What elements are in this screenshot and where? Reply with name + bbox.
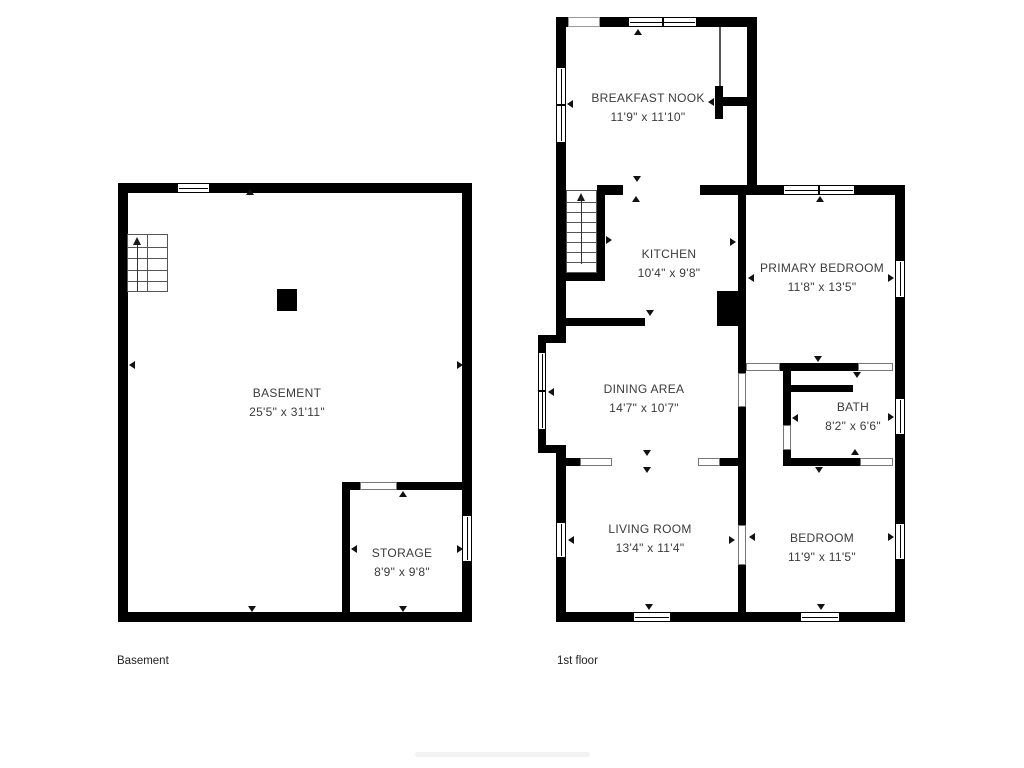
room-label-living-room: LIVING ROOM 13'4" x 11'4" xyxy=(550,520,750,558)
triangle-marker-icon xyxy=(645,604,653,610)
room-label-dining-area: DINING AREA 14'7" x 10'7" xyxy=(544,380,744,418)
wall-segment xyxy=(342,482,360,490)
room-dims: 11'8" x 13'5" xyxy=(722,278,922,297)
room-name: PRIMARY BEDROOM xyxy=(722,259,922,278)
floorplan-canvas: BASEMENT 25'5" x 31'11" STORAGE 8'9" x 9… xyxy=(0,0,1024,768)
triangle-marker-icon xyxy=(399,491,407,497)
wall-segment xyxy=(556,318,645,326)
arrow-up-icon xyxy=(577,193,585,201)
door-symbol xyxy=(860,458,893,466)
room-dims: 11'9" x 11'5" xyxy=(722,548,922,567)
door-symbol xyxy=(580,458,612,466)
wall-segment xyxy=(895,185,905,260)
staircase xyxy=(127,234,168,292)
stair-direction-line xyxy=(137,245,138,291)
triangle-marker-icon xyxy=(814,356,822,362)
triangle-marker-icon xyxy=(129,361,135,369)
room-dims: 11'9" x 11'10" xyxy=(548,108,748,127)
wall-segment xyxy=(556,445,566,522)
door-symbol xyxy=(360,482,397,490)
wall-segment xyxy=(780,363,858,371)
room-name: BATH xyxy=(753,398,953,417)
room-name: LIVING ROOM xyxy=(550,520,750,539)
plan-caption-first-floor: 1st floor xyxy=(557,655,598,667)
door-symbol xyxy=(858,363,893,371)
wall-segment xyxy=(671,612,800,622)
room-label-breakfast-nook: BREAKFAST NOOK 11'9" x 11'10" xyxy=(548,89,748,127)
room-label-storage: STORAGE 8'9" x 9'8" xyxy=(332,544,472,582)
room-dims: 13'4" x 11'4" xyxy=(550,539,750,558)
wall-segment xyxy=(538,335,546,352)
triangle-marker-icon xyxy=(633,176,641,182)
window-symbol xyxy=(783,185,855,195)
room-name: BEDROOM xyxy=(722,529,922,548)
wall-segment xyxy=(118,612,472,622)
triangle-marker-icon xyxy=(248,606,256,612)
triangle-marker-icon xyxy=(643,450,651,456)
door-symbol xyxy=(698,458,720,466)
wall-segment xyxy=(840,612,905,622)
partition-line xyxy=(719,27,721,89)
triangle-marker-icon xyxy=(399,606,407,612)
triangle-marker-icon xyxy=(643,467,651,473)
room-dims: 14'7" x 10'7" xyxy=(544,399,744,418)
window-symbol xyxy=(800,612,840,622)
triangle-marker-icon xyxy=(815,467,823,473)
triangle-marker-icon xyxy=(817,604,825,610)
room-label-basement: BASEMENT 25'5" x 31'11" xyxy=(187,384,387,422)
wall-segment xyxy=(556,17,566,67)
wall-segment xyxy=(462,183,472,515)
arrow-up-icon xyxy=(133,237,141,245)
window-symbol xyxy=(628,17,697,27)
room-name: BASEMENT xyxy=(187,384,387,403)
support-column xyxy=(277,289,297,311)
wall-segment xyxy=(895,298,905,398)
triangle-marker-icon xyxy=(853,372,861,378)
opening-symbol xyxy=(568,17,600,27)
triangle-marker-icon xyxy=(634,29,642,35)
wall-segment xyxy=(720,458,746,466)
triangle-marker-icon xyxy=(816,196,824,202)
wall-segment xyxy=(397,482,462,490)
wall-segment xyxy=(738,407,746,525)
stair-divider xyxy=(147,235,148,291)
room-label-bedroom: BEDROOM 11'9" x 11'5" xyxy=(722,529,922,567)
triangle-marker-icon xyxy=(606,236,612,244)
stair-direction-line xyxy=(581,200,582,264)
wall-segment xyxy=(538,445,566,453)
room-dims: 25'5" x 31'11" xyxy=(187,403,387,422)
wall-segment xyxy=(556,612,633,622)
wall-segment xyxy=(600,17,628,27)
wall-segment xyxy=(783,458,860,466)
plan-caption-basement: Basement xyxy=(117,655,169,667)
room-label-bath: BATH 8'2" x 6'6" xyxy=(753,398,953,436)
wall-segment xyxy=(556,143,566,185)
room-label-primary-bedroom: PRIMARY BEDROOM 11'8" x 13'5" xyxy=(722,259,922,297)
wall-segment xyxy=(738,565,746,622)
wall-segment xyxy=(791,385,853,392)
triangle-marker-icon xyxy=(457,361,463,369)
triangle-marker-icon xyxy=(646,310,654,316)
triangle-marker-icon xyxy=(632,196,640,202)
room-name: DINING AREA xyxy=(544,380,744,399)
wall-segment xyxy=(556,185,566,335)
room-name: STORAGE xyxy=(332,544,472,563)
triangle-marker-icon xyxy=(246,189,254,195)
faint-divider xyxy=(415,752,590,757)
door-symbol xyxy=(746,363,780,371)
window-symbol xyxy=(177,183,210,193)
room-dims: 8'9" x 9'8" xyxy=(332,563,472,582)
wall-segment xyxy=(895,435,905,523)
room-dims: 8'2" x 6'6" xyxy=(753,417,953,436)
triangle-marker-icon xyxy=(851,449,859,455)
wall-segment xyxy=(747,17,757,185)
window-symbol xyxy=(633,612,671,622)
wall-segment xyxy=(556,458,580,466)
wall-segment xyxy=(717,318,738,326)
room-name: BREAKFAST NOOK xyxy=(548,89,748,108)
